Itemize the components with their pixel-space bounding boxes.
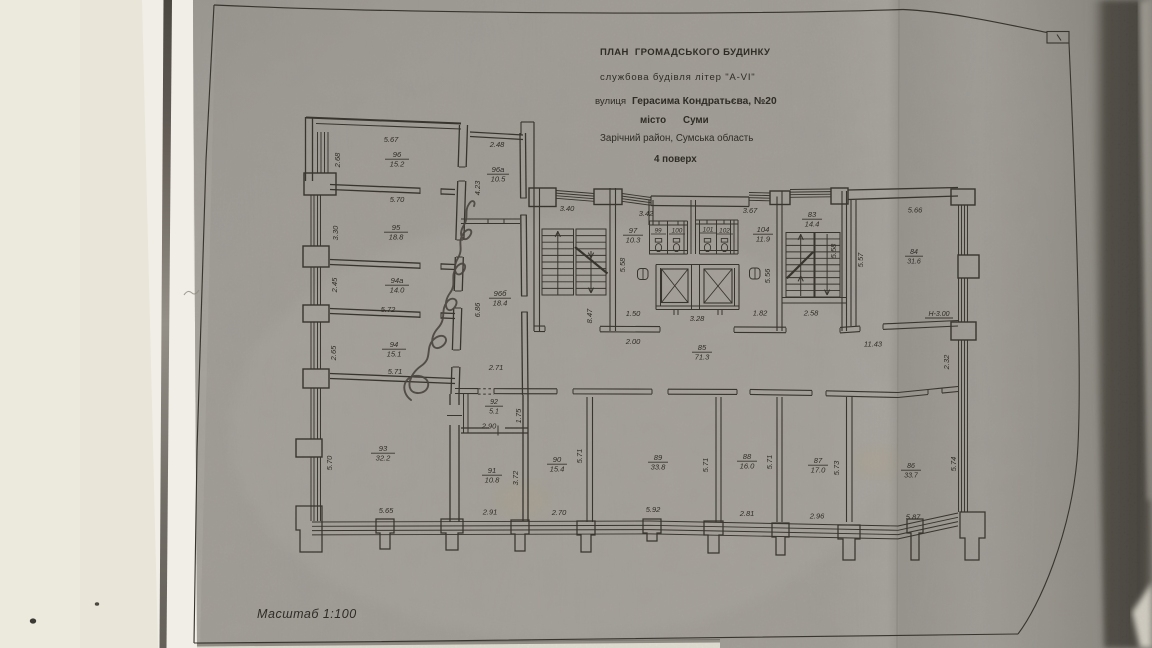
svg-text:2.71: 2.71 <box>488 363 504 372</box>
svg-text:5.71: 5.71 <box>765 455 774 470</box>
svg-text:2.70: 2.70 <box>551 508 567 517</box>
svg-text:5.58: 5.58 <box>618 257 627 272</box>
svg-text:8.47: 8.47 <box>585 308 594 323</box>
svg-text:5.66: 5.66 <box>908 206 923 215</box>
svg-text:6.86: 6.86 <box>473 302 482 317</box>
svg-text:11.43: 11.43 <box>864 340 883 349</box>
svg-text:3.67: 3.67 <box>743 206 758 215</box>
svg-text:96: 96 <box>393 150 402 159</box>
svg-text:2.81: 2.81 <box>739 509 755 518</box>
svg-text:Суми: Суми <box>683 115 709 126</box>
svg-text:2.96: 2.96 <box>809 512 825 521</box>
svg-text:15.4: 15.4 <box>550 465 565 474</box>
svg-text:18.4: 18.4 <box>493 299 508 308</box>
svg-text:4.23: 4.23 <box>473 180 482 195</box>
svg-text:15.1: 15.1 <box>387 350 402 359</box>
svg-text:3.42: 3.42 <box>639 209 654 218</box>
svg-text:Н-3.00: Н-3.00 <box>928 311 949 318</box>
svg-text:3.40: 3.40 <box>560 204 575 213</box>
svg-text:100: 100 <box>672 228 683 235</box>
svg-text:5.57: 5.57 <box>856 252 865 267</box>
svg-text:3.28: 3.28 <box>690 314 705 323</box>
svg-text:Зарічний район, Сумська област: Зарічний район, Сумська область <box>600 133 753 144</box>
svg-text:15.2: 15.2 <box>390 160 406 169</box>
svg-text:5.71: 5.71 <box>388 367 403 376</box>
svg-text:84: 84 <box>910 249 918 256</box>
svg-text:14.0: 14.0 <box>390 286 406 295</box>
svg-text:Масштаб 1:100: Масштаб 1:100 <box>257 607 357 621</box>
svg-text:службова будівля літер "А-VI": службова будівля літер "А-VI" <box>600 72 756 83</box>
svg-text:87: 87 <box>814 456 823 465</box>
svg-text:2.45: 2.45 <box>330 277 339 293</box>
svg-text:5.71: 5.71 <box>701 458 710 473</box>
svg-text:85: 85 <box>698 343 707 352</box>
svg-text:14.4: 14.4 <box>805 220 820 229</box>
svg-text:3.30: 3.30 <box>331 225 340 240</box>
svg-text:96а: 96а <box>492 165 505 174</box>
svg-text:5.67: 5.67 <box>384 135 399 144</box>
svg-text:1.75: 1.75 <box>514 408 523 423</box>
svg-text:Герасима Кондратьєва, №20: Герасима Кондратьєва, №20 <box>632 96 777 107</box>
svg-text:5.72: 5.72 <box>381 305 396 314</box>
svg-text:2.00: 2.00 <box>625 337 641 346</box>
svg-text:33.8: 33.8 <box>651 463 667 472</box>
svg-text:1.82: 1.82 <box>753 309 768 318</box>
svg-text:5.87: 5.87 <box>906 513 921 522</box>
svg-text:104: 104 <box>757 225 770 234</box>
svg-text:89: 89 <box>654 453 663 462</box>
svg-text:5.71: 5.71 <box>575 449 584 464</box>
svg-text:2.32: 2.32 <box>942 354 951 370</box>
svg-text:2.68: 2.68 <box>333 152 342 168</box>
svg-text:5.58: 5.58 <box>829 243 838 258</box>
svg-text:86: 86 <box>907 463 915 470</box>
svg-text:5.56: 5.56 <box>763 268 772 283</box>
svg-text:18.8: 18.8 <box>389 233 405 242</box>
svg-text:5.70: 5.70 <box>325 455 334 470</box>
svg-text:92: 92 <box>490 399 498 406</box>
svg-text:32.2: 32.2 <box>376 454 392 463</box>
svg-text:4 поверх: 4 поверх <box>654 154 697 165</box>
svg-text:5.70: 5.70 <box>390 195 405 204</box>
svg-text:2.58: 2.58 <box>803 309 819 318</box>
svg-text:1.50: 1.50 <box>626 309 641 318</box>
svg-text:95: 95 <box>392 223 401 232</box>
svg-text:102: 102 <box>719 228 730 235</box>
svg-text:2.90: 2.90 <box>481 422 497 431</box>
svg-text:10.5: 10.5 <box>491 175 507 184</box>
svg-text:10.8: 10.8 <box>485 476 501 485</box>
svg-text:5.92: 5.92 <box>646 505 661 514</box>
svg-text:94: 94 <box>390 340 398 349</box>
svg-text:83: 83 <box>808 210 817 219</box>
svg-text:31.6: 31.6 <box>907 259 921 266</box>
svg-text:місто: місто <box>640 115 666 126</box>
svg-text:10.3: 10.3 <box>626 236 642 245</box>
svg-text:2.48: 2.48 <box>489 140 505 149</box>
svg-text:5.73: 5.73 <box>832 460 841 475</box>
svg-text:вулиця: вулиця <box>595 96 626 107</box>
svg-text:3.72: 3.72 <box>511 470 520 485</box>
svg-text:93: 93 <box>379 444 388 453</box>
svg-text:5.1: 5.1 <box>489 409 499 416</box>
svg-text:90: 90 <box>553 455 562 464</box>
svg-text:16.0: 16.0 <box>740 462 756 471</box>
svg-text:101: 101 <box>703 227 714 234</box>
svg-text:96б: 96б <box>494 289 507 298</box>
svg-text:17.0: 17.0 <box>811 466 827 475</box>
svg-text:88: 88 <box>743 452 752 461</box>
svg-text:33.7: 33.7 <box>904 473 919 480</box>
svg-text:97: 97 <box>629 226 638 235</box>
svg-text:11.9: 11.9 <box>756 235 771 244</box>
svg-text:99: 99 <box>654 228 662 235</box>
svg-text:71.3: 71.3 <box>695 353 711 362</box>
svg-text:ПЛАН ГРОМАДСЬКОГО БУДИНКУ: ПЛАН ГРОМАДСЬКОГО БУДИНКУ <box>600 47 770 58</box>
svg-text:94а: 94а <box>391 276 404 285</box>
svg-text:2.65: 2.65 <box>329 345 338 361</box>
svg-text:2.91: 2.91 <box>482 508 498 517</box>
svg-text:91: 91 <box>488 466 496 475</box>
svg-text:5.74: 5.74 <box>949 457 958 472</box>
svg-text:5.65: 5.65 <box>379 506 394 515</box>
